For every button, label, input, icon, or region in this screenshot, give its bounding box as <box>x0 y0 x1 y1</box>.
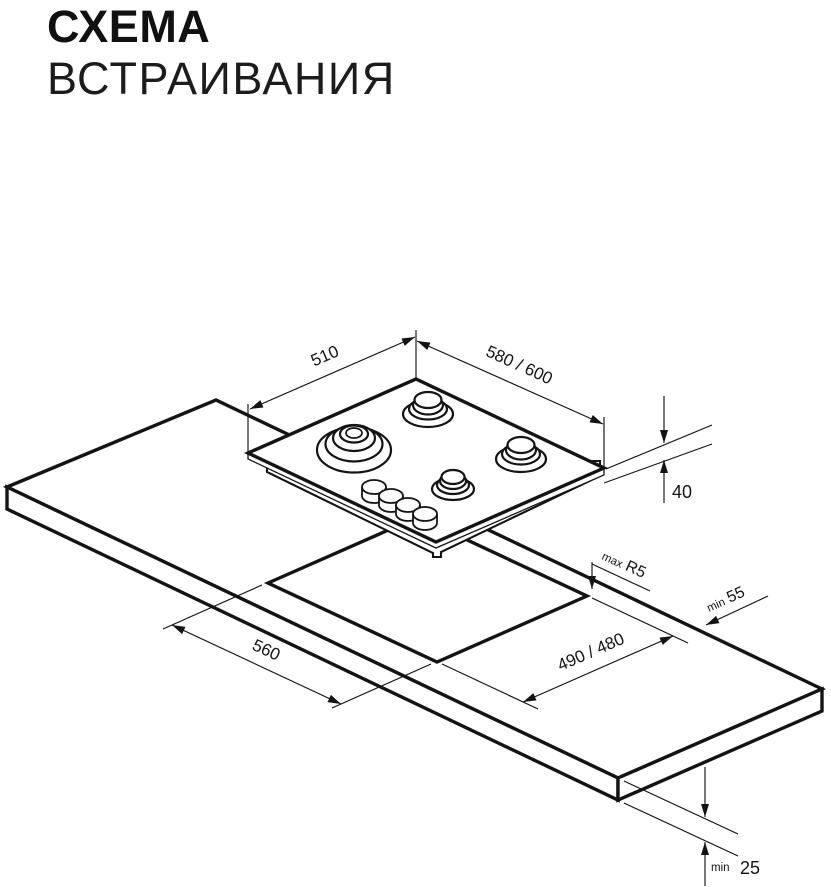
control-knob <box>413 507 437 530</box>
dim-worktop-thickness-ext-bottom <box>624 803 738 856</box>
installation-diagram: 510 580 / 600 40 maxR5 min55 <box>0 0 831 887</box>
dim-worktop-thickness-ext-top <box>624 781 738 834</box>
dim-hob-height-label: 40 <box>672 482 692 502</box>
dim-hob-depth-label: 580 / 600 <box>483 342 555 388</box>
dim-hob-height: 40 <box>604 396 712 503</box>
installation-diagram-page: СХЕМА ВСТРАИВАНИЯ <box>0 0 831 887</box>
dim-hob-height-ext-top <box>606 425 712 469</box>
dim-rear-clearance-label: min55 <box>704 584 748 616</box>
dim-hob-width-label: 510 <box>308 342 342 371</box>
burner-front-cap-top <box>442 470 465 484</box>
dim-corner-radius-label: maxR5 <box>599 547 648 582</box>
dim-rear-clearance: min55 <box>704 584 768 625</box>
burner-back-cap-top <box>415 392 442 408</box>
burner-right-cap-top <box>508 437 535 453</box>
dim-worktop-thickness-label: min25 <box>711 858 760 878</box>
